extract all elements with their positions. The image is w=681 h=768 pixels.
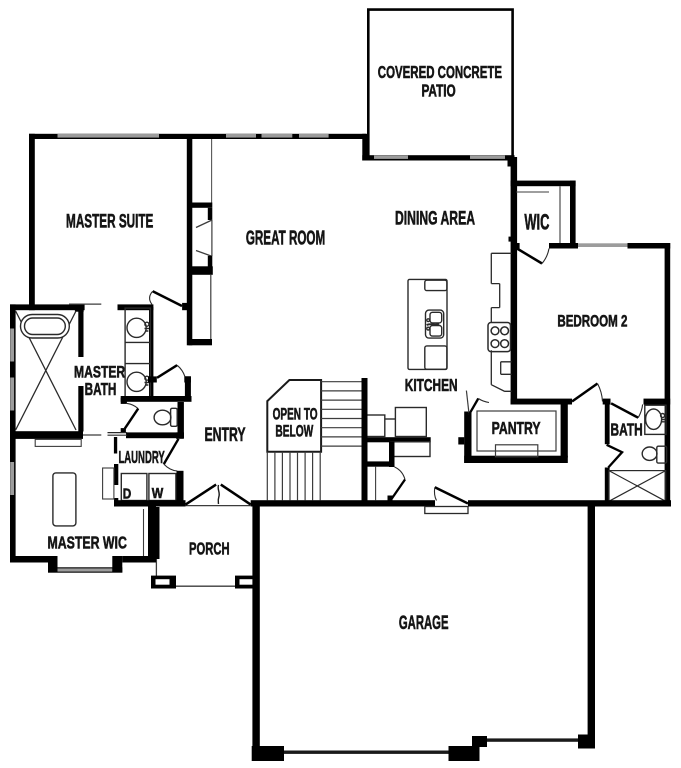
svg-text:PANTRY: PANTRY bbox=[492, 418, 541, 438]
svg-text:BELOW: BELOW bbox=[275, 421, 313, 440]
svg-text:PATIO: PATIO bbox=[421, 81, 455, 101]
svg-text:DINING AREA: DINING AREA bbox=[395, 208, 475, 230]
svg-text:BATH: BATH bbox=[85, 379, 117, 399]
svg-text:ENTRY: ENTRY bbox=[204, 424, 245, 446]
svg-text:KITCHEN: KITCHEN bbox=[405, 375, 458, 395]
svg-text:WIC: WIC bbox=[524, 209, 549, 234]
svg-text:D: D bbox=[123, 485, 132, 502]
svg-text:MASTER WIC: MASTER WIC bbox=[48, 533, 127, 553]
svg-text:GARAGE: GARAGE bbox=[399, 613, 449, 634]
svg-text:BATH: BATH bbox=[611, 419, 643, 439]
svg-text:GREAT ROOM: GREAT ROOM bbox=[246, 228, 325, 250]
svg-text:W: W bbox=[152, 485, 164, 502]
svg-text:LAUNDRY: LAUNDRY bbox=[118, 447, 165, 467]
svg-text:PORCH: PORCH bbox=[189, 539, 230, 559]
svg-text:BEDROOM 2: BEDROOM 2 bbox=[557, 313, 627, 331]
svg-text:MASTER SUITE: MASTER SUITE bbox=[66, 211, 153, 232]
svg-text:COVERED CONCRETE: COVERED CONCRETE bbox=[378, 62, 502, 82]
